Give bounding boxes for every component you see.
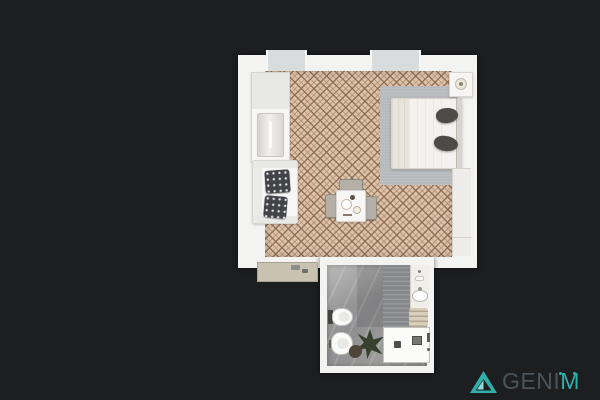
bathroom-accessory xyxy=(418,270,421,273)
window-top-right xyxy=(370,50,421,71)
bidet-bowl-inner xyxy=(337,338,349,349)
bed-folded-blanket xyxy=(392,99,409,168)
faucet xyxy=(418,287,422,291)
shower-knob xyxy=(427,348,430,351)
cup xyxy=(350,195,355,200)
double-bed xyxy=(391,98,462,169)
logo-dot-right xyxy=(573,372,576,375)
toilet-bowl-inner xyxy=(338,312,350,322)
wardrobe xyxy=(251,72,290,162)
sofa-cushion-top xyxy=(264,169,291,194)
logo-dot-left xyxy=(559,372,562,375)
logo-text-teal: M xyxy=(560,368,580,394)
vanity xyxy=(410,265,429,310)
genim-logo: GENIM xyxy=(470,370,590,394)
window-top-left xyxy=(266,50,307,71)
shower-control-panel xyxy=(412,336,422,345)
console-item xyxy=(291,265,300,270)
sofa-cushion-bottom xyxy=(263,195,288,219)
dining-table xyxy=(336,190,366,222)
sofa-armrest-top xyxy=(253,161,297,168)
plate xyxy=(341,199,352,210)
towel-shelf xyxy=(409,308,428,327)
sideboard-divider xyxy=(453,237,472,238)
sofa-backrest xyxy=(253,161,262,223)
floor-plan-canvas: GENIM xyxy=(0,0,600,400)
bathroom-floor-dark-strip xyxy=(357,265,383,327)
sofa xyxy=(252,160,298,224)
wardrobe-door-panel xyxy=(257,113,284,157)
shower-tray xyxy=(383,327,430,363)
logo-text-gray: GENI xyxy=(502,368,560,394)
console-item xyxy=(302,269,308,273)
shower-wall-tiles xyxy=(383,265,410,327)
entry-console xyxy=(257,262,318,282)
plate-small xyxy=(353,206,361,214)
toilet xyxy=(328,307,355,328)
wardrobe-top-shelf xyxy=(252,73,289,109)
cutlery xyxy=(343,214,352,216)
shower-handle xyxy=(427,333,430,342)
logo-text: GENIM xyxy=(502,370,580,392)
bed-headboard xyxy=(456,98,462,169)
nightstand xyxy=(449,72,473,97)
wardrobe-handle xyxy=(269,122,272,148)
sink xyxy=(412,290,428,302)
soap-dish xyxy=(415,276,424,281)
logo-triangle-icon xyxy=(470,371,497,393)
shower-drain xyxy=(394,341,401,348)
lamp-center xyxy=(459,82,463,86)
sideboard xyxy=(452,168,471,256)
